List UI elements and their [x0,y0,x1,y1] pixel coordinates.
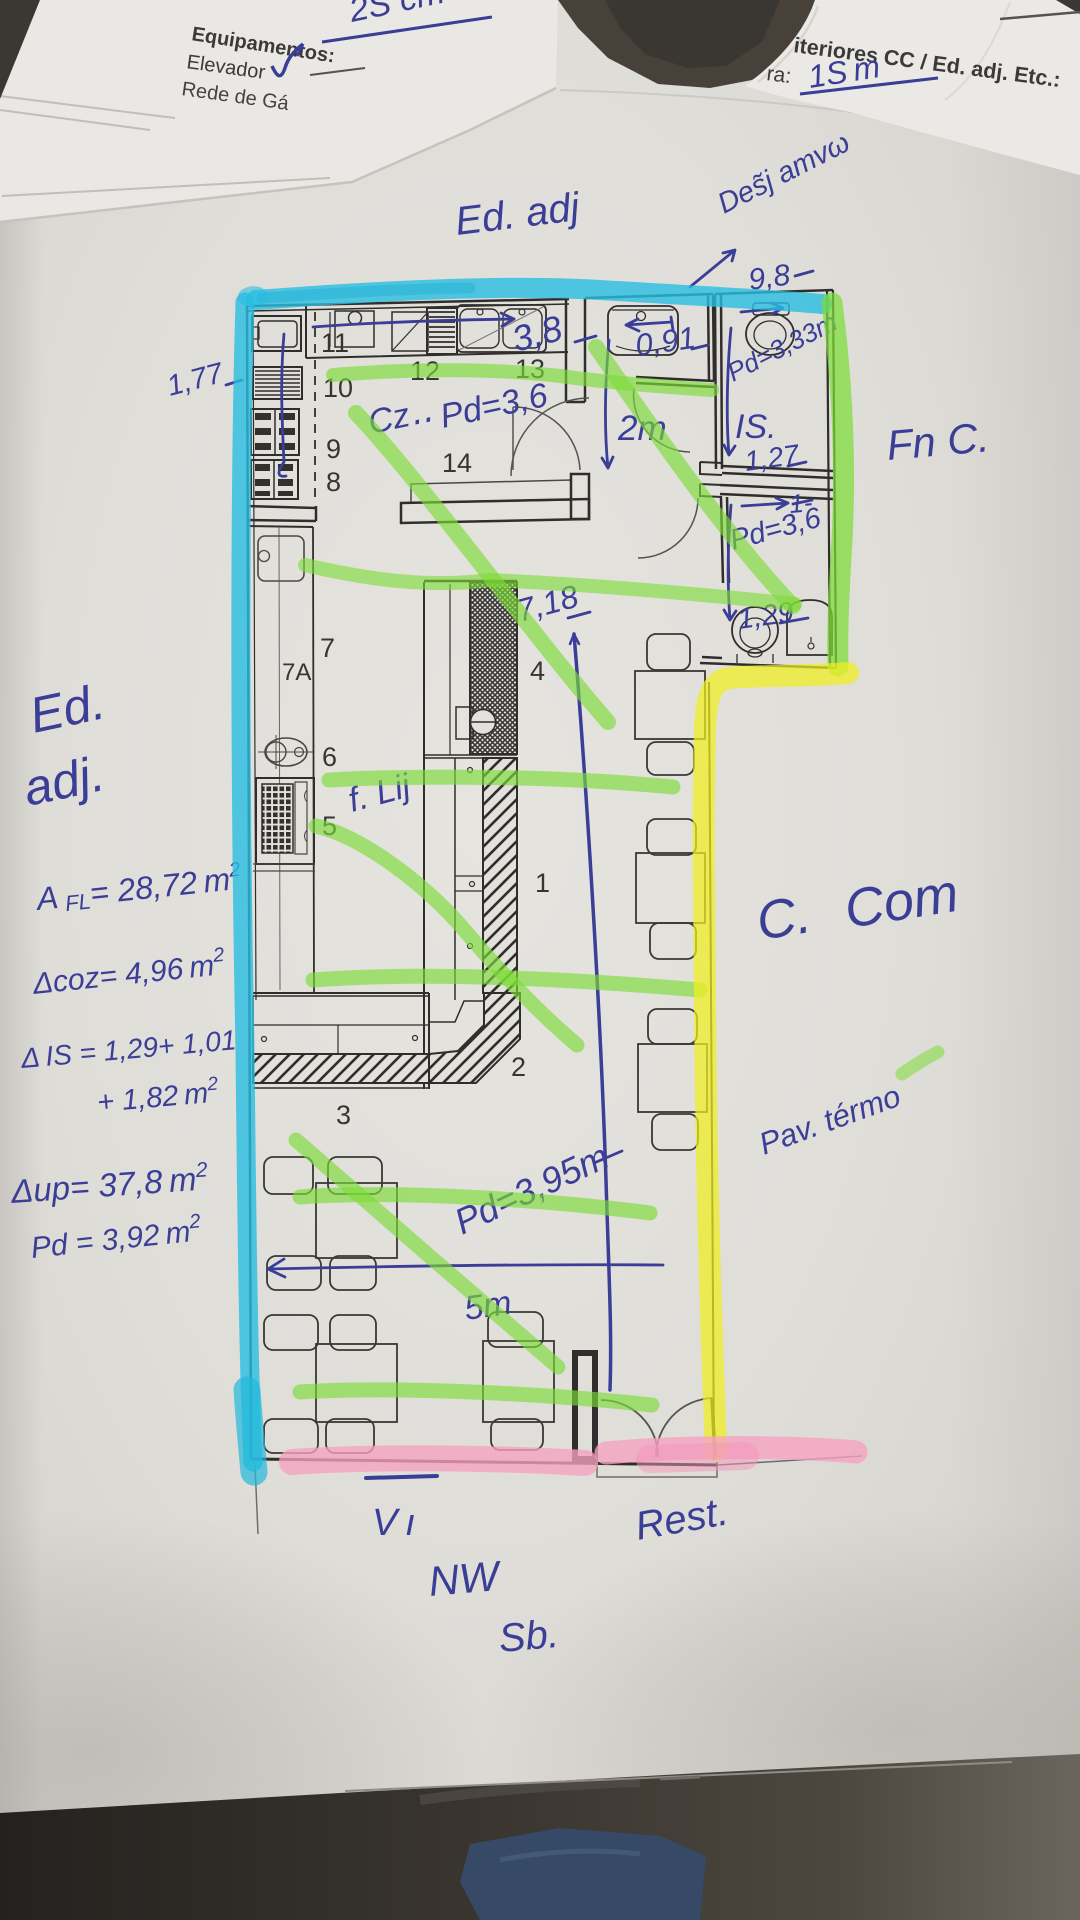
svg-text:IS.: IS. [735,408,777,446]
svg-text:8: 8 [326,467,341,497]
svg-text:11: 11 [321,328,349,358]
svg-text:9: 9 [326,434,341,464]
svg-text:ra:: ra: [765,62,792,88]
svg-text:14: 14 [442,448,472,478]
svg-text:7: 7 [320,633,335,663]
svg-text:V ı: V ı [372,1502,416,1544]
svg-text:4: 4 [530,656,545,686]
svg-text:3: 3 [336,1100,351,1130]
svg-text:Fn C.: Fn C. [885,413,991,469]
svg-text:1: 1 [535,868,550,898]
svg-text:NW: NW [427,1552,504,1605]
svg-text:7A: 7A [282,659,311,686]
svg-text:6: 6 [322,742,337,772]
svg-text:C.: C. [752,884,815,952]
svg-text:2: 2 [511,1052,526,1082]
svg-text:Sb.: Sb. [497,1612,561,1661]
